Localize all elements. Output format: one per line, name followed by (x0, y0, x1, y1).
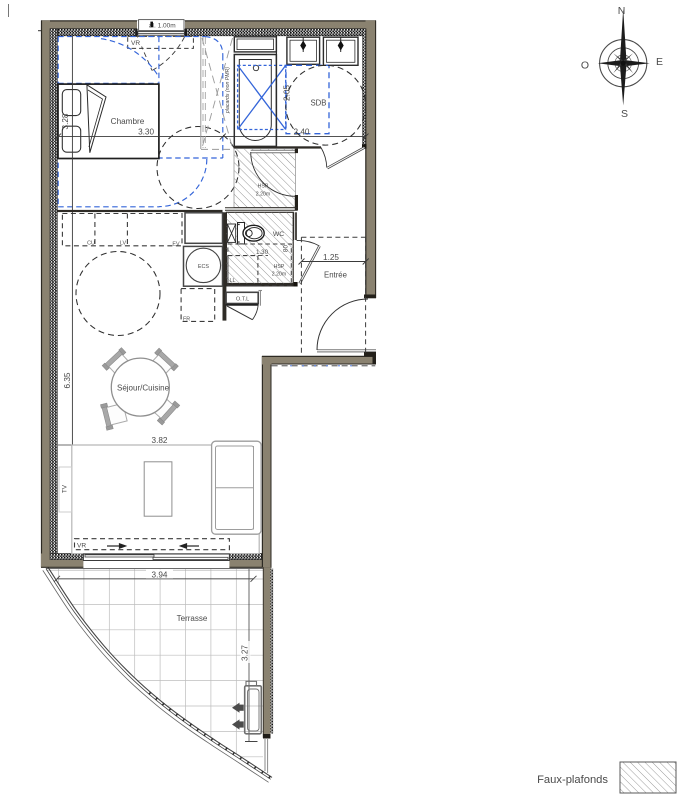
svg-text:2.20m: 2.20m (272, 272, 286, 278)
svg-text:EV: EV (172, 242, 180, 248)
svg-text:O.T.L: O.T.L (236, 297, 249, 303)
svg-text:Séjour/Cuisine: Séjour/Cuisine (117, 384, 170, 393)
svg-text:Terrasse: Terrasse (177, 614, 208, 623)
svg-text:HSP: HSP (274, 264, 285, 270)
svg-text:LL: LL (230, 278, 236, 284)
svg-text:Chambre: Chambre (111, 117, 145, 126)
svg-text:2.05: 2.05 (283, 85, 292, 101)
svg-text:S: S (621, 108, 628, 120)
svg-text:1.30: 1.30 (256, 249, 269, 256)
svg-text:TV: TV (62, 484, 69, 493)
svg-text:Entrée: Entrée (324, 271, 347, 280)
svg-text:2.40: 2.40 (294, 128, 310, 137)
svg-text:SDB: SDB (310, 99, 326, 108)
svg-text:ECS: ECS (198, 264, 209, 270)
svg-text:3.94: 3.94 (152, 571, 168, 580)
svg-text:3.27: 3.27 (241, 645, 250, 661)
svg-text:LV: LV (120, 241, 127, 247)
svg-text:3.82: 3.82 (152, 436, 168, 445)
svg-text:CU: CU (87, 241, 95, 247)
svg-text:N: N (618, 5, 626, 17)
svg-text:1.25: 1.25 (323, 253, 339, 262)
svg-text:placards (non PMR): placards (non PMR) (225, 67, 231, 114)
svg-text:3.30: 3.30 (138, 128, 154, 137)
svg-text:WC: WC (273, 231, 284, 238)
svg-text:VR: VR (77, 542, 86, 549)
svg-text:VR: VR (131, 40, 140, 47)
svg-text:O: O (581, 60, 589, 72)
svg-text:FR: FR (183, 317, 190, 323)
svg-text:Faux-plafonds: Faux-plafonds (537, 774, 608, 786)
svg-text:2.20m: 2.20m (256, 192, 270, 198)
svg-text:6.35: 6.35 (63, 372, 72, 388)
svg-text:3.28: 3.28 (61, 113, 70, 129)
svg-text:E: E (656, 56, 663, 68)
svg-text:80: 80 (283, 245, 290, 253)
